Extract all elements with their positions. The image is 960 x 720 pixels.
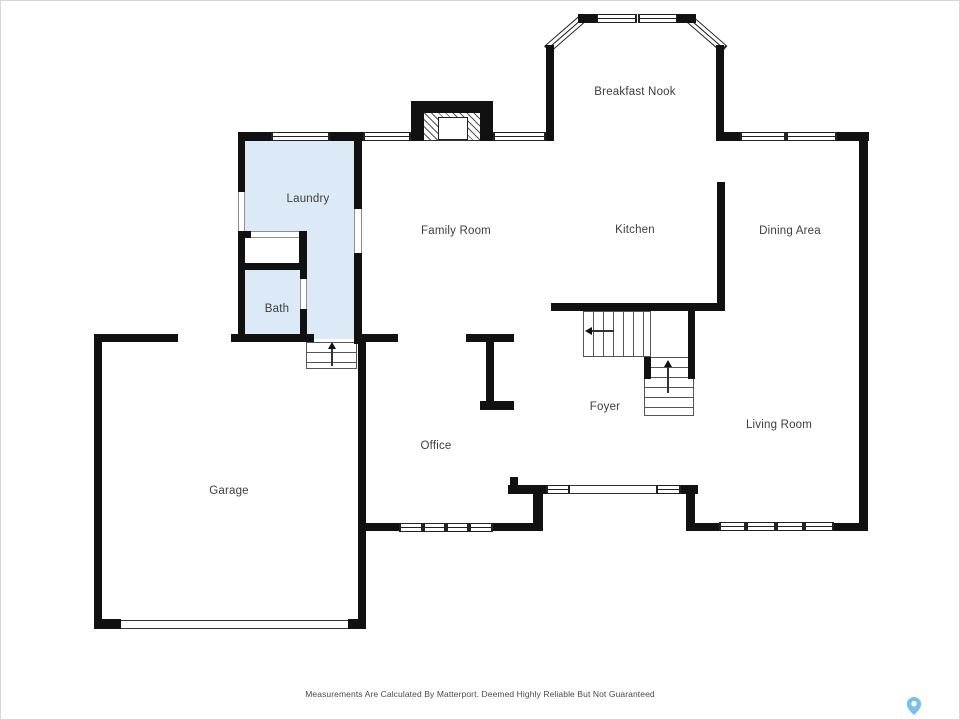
bay-window xyxy=(638,14,678,23)
wall xyxy=(859,132,868,531)
wall xyxy=(551,303,724,311)
window xyxy=(399,523,423,532)
wall xyxy=(354,253,362,344)
window xyxy=(493,132,546,141)
room-label-foyer: Foyer xyxy=(590,401,620,413)
wall xyxy=(299,231,307,266)
left-arrow-icon xyxy=(585,327,592,335)
fireplace-wall xyxy=(411,101,424,141)
window xyxy=(776,522,804,531)
disclaimer-text: Measurements Are Calculated By Matterpor… xyxy=(1,689,959,699)
floor-plan-canvas: Breakfast Nook Laundry Family Room Kitch… xyxy=(0,0,960,720)
wall xyxy=(486,342,494,403)
window xyxy=(656,485,681,494)
wall xyxy=(508,485,546,494)
wall xyxy=(716,45,724,141)
window xyxy=(719,522,746,531)
window xyxy=(423,523,446,532)
wall xyxy=(644,357,651,379)
wall xyxy=(354,134,362,209)
room-label-laundry: Laundry xyxy=(287,193,330,205)
up-arrow-shaft xyxy=(667,367,669,393)
wall xyxy=(238,233,245,341)
room-label-living-room: Living Room xyxy=(746,419,812,431)
wall xyxy=(300,309,307,334)
room-label-office: Office xyxy=(420,440,451,452)
matterport-pin-icon xyxy=(906,697,922,715)
wall xyxy=(238,231,251,238)
wall xyxy=(717,182,725,311)
wall xyxy=(300,270,307,279)
wall xyxy=(238,134,245,192)
staircase-upper-flight xyxy=(583,311,651,357)
door-opening xyxy=(354,209,362,253)
up-arrow-shaft xyxy=(331,349,333,366)
room-label-family-room: Family Room xyxy=(421,225,491,237)
bay-window xyxy=(596,14,637,23)
wall xyxy=(834,523,868,531)
wall xyxy=(578,14,597,23)
wall xyxy=(677,14,696,23)
window xyxy=(446,523,469,532)
room-label-dining-area: Dining Area xyxy=(759,225,821,237)
room-label-garage: Garage xyxy=(209,485,249,497)
wall xyxy=(358,334,398,342)
wall xyxy=(231,334,314,342)
garage-door xyxy=(121,620,348,629)
fireplace-wall xyxy=(480,101,493,141)
wall xyxy=(94,335,102,629)
closet-opening xyxy=(251,231,299,238)
wall xyxy=(533,491,543,527)
up-arrow-icon xyxy=(664,360,672,367)
wall xyxy=(686,523,719,531)
closet-floor-fill xyxy=(245,237,300,264)
door-opening xyxy=(238,192,245,233)
wall xyxy=(510,477,518,486)
wall xyxy=(358,336,366,629)
window xyxy=(363,132,411,141)
room-label-kitchen: Kitchen xyxy=(615,224,655,236)
wall xyxy=(686,491,695,527)
wall xyxy=(480,401,514,410)
room-label-breakfast-nook: Breakfast Nook xyxy=(594,86,675,98)
wall xyxy=(94,334,178,342)
wall xyxy=(94,619,121,629)
wall xyxy=(348,619,366,629)
wall xyxy=(238,263,307,270)
wall xyxy=(688,311,695,379)
window xyxy=(740,132,786,141)
fireplace-firebox xyxy=(438,117,468,140)
window xyxy=(746,522,776,531)
window xyxy=(469,523,493,532)
bath-door-opening xyxy=(300,279,307,309)
window xyxy=(786,132,837,141)
porch-edge xyxy=(570,485,656,494)
window xyxy=(271,132,330,141)
left-arrow-shaft xyxy=(592,330,614,332)
wall xyxy=(546,45,554,141)
wall xyxy=(358,523,399,531)
room-label-bath: Bath xyxy=(265,303,289,315)
wall xyxy=(466,334,514,342)
window xyxy=(804,522,834,531)
window xyxy=(546,485,570,494)
up-arrow-icon xyxy=(328,342,336,349)
